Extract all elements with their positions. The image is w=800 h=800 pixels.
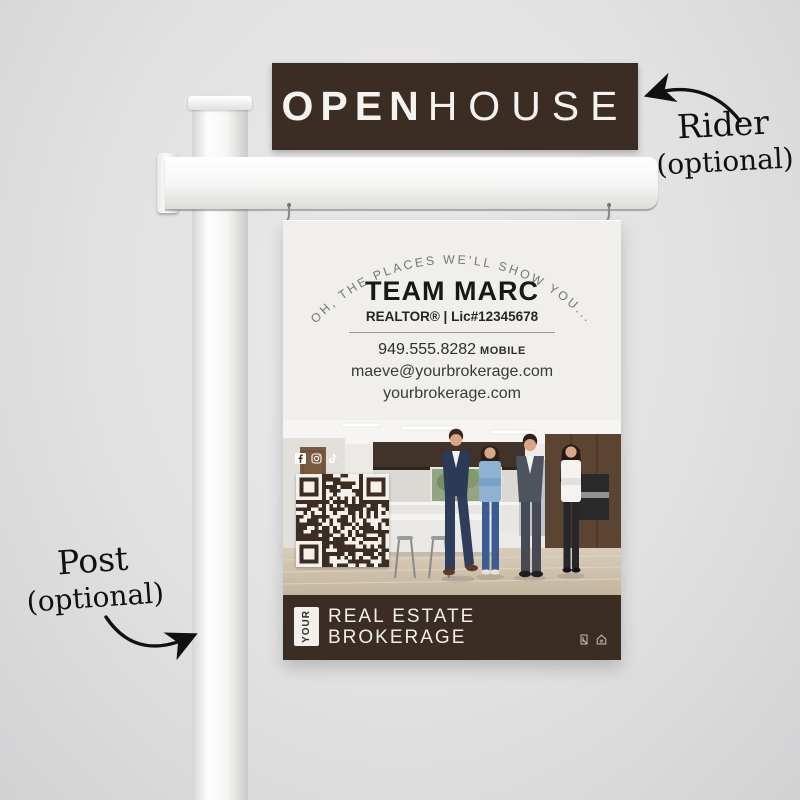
phone-row: 949.555.8282MOBILE <box>283 341 621 359</box>
compliance-icons <box>580 634 607 645</box>
phone-number: 949.555.8282 <box>378 341 476 358</box>
brand-line1: REAL ESTATE <box>328 606 475 627</box>
qr-code <box>296 474 389 567</box>
brokerage-logo: YOUR <box>294 607 319 646</box>
sign-panel: OH, THE PLACES WE’LL SHOW YOU... TEAM MA… <box>283 220 621 660</box>
crossbar-arm <box>165 157 658 209</box>
post-annotation: Post (optional) <box>8 536 181 622</box>
logo-word: YOUR <box>301 610 312 643</box>
footer-brand-bar: YOUR REAL ESTATE BROKERAGE <box>283 595 621 660</box>
realtor-mls-icon <box>580 634 589 645</box>
rider-annotation-sub: (optional) <box>648 140 800 184</box>
agent-name: TEAM MARC <box>283 276 621 307</box>
post-cap <box>188 96 252 110</box>
rider-word-open: OPEN <box>281 83 425 130</box>
sign-header: OH, THE PLACES WE’LL SHOW YOU... TEAM MA… <box>283 220 621 420</box>
phone-tag: MOBILE <box>480 345 526 357</box>
rider-annotation: Rider (optional) <box>646 102 800 184</box>
post-arrow <box>106 617 190 646</box>
brand-name: REAL ESTATE BROKERAGE <box>328 606 475 648</box>
email-address: maeve@yourbrokerage.com <box>283 363 621 381</box>
agent-credentials: REALTOR® | Lic#12345678 <box>283 309 621 324</box>
rider-word-house: HOUSE <box>428 83 629 130</box>
tiktok-icon <box>327 453 338 464</box>
team-photo <box>283 420 621 595</box>
equal-housing-icon <box>596 634 607 645</box>
sign-post <box>192 108 248 800</box>
website-url: yourbrokerage.com <box>283 385 621 403</box>
divider-line <box>349 332 555 333</box>
brand-line2: BROKERAGE <box>328 627 475 648</box>
social-icons <box>295 453 338 464</box>
sign-mockup: OPENHOUSE OH, THE PLACES WE’LL SHOW YOU.… <box>0 0 800 800</box>
open-house-rider: OPENHOUSE <box>272 63 638 150</box>
instagram-icon <box>311 453 322 464</box>
facebook-icon <box>295 453 306 464</box>
